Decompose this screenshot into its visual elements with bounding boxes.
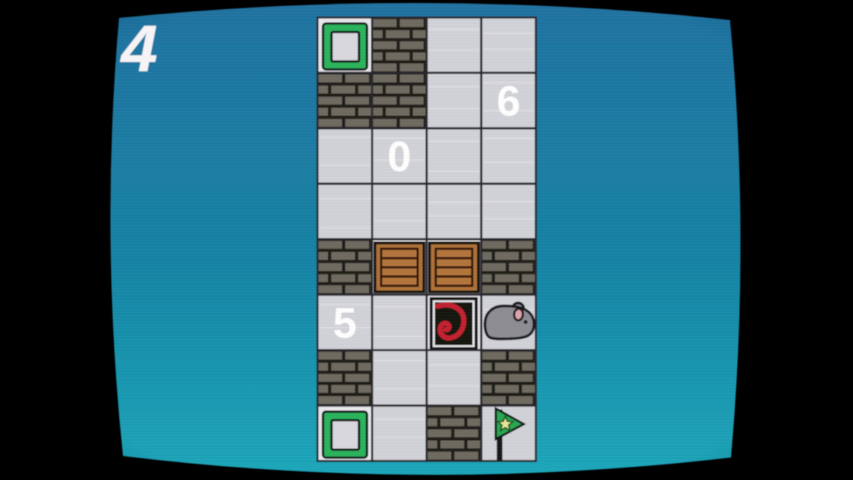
svg-text:4: 4 [119, 11, 158, 85]
